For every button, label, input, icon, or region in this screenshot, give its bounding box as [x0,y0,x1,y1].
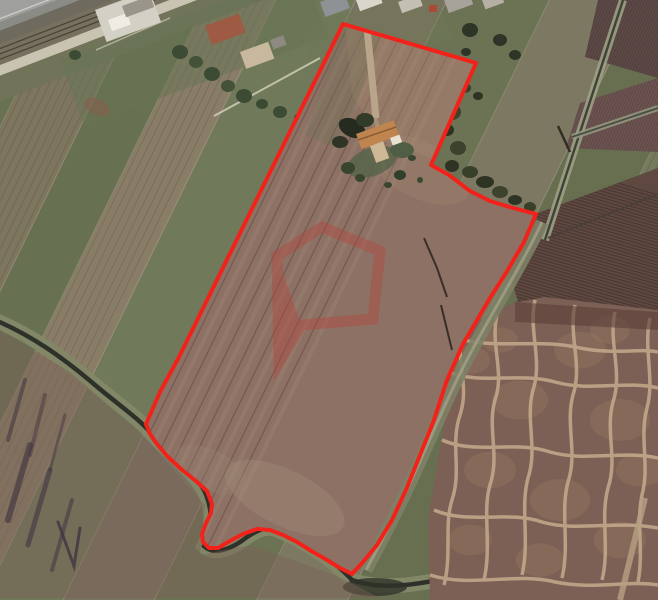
tree [356,113,374,127]
tree [332,136,348,148]
satellite-map [0,0,658,600]
red-roof-shed [429,5,437,12]
satellite-image [0,0,658,600]
